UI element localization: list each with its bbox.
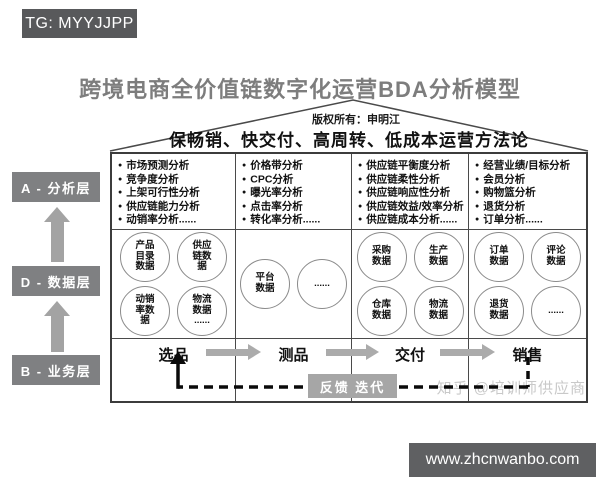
business-step-label: 交付 (395, 344, 425, 401)
layer-label-analysis: A - 分析层 (12, 172, 100, 202)
analysis-item: 供应链响应性分析 (356, 186, 466, 200)
business-step-label: 测品 (278, 344, 308, 401)
analysis-item: 供应链柔性分析 (356, 173, 466, 187)
footer-url: www.zhcnwanbo.com (409, 443, 596, 477)
flow-arrow-icon (440, 344, 495, 360)
analysis-item: 经营业绩/目标分析 (473, 159, 584, 173)
analysis-item: 购物篮分析 (473, 186, 584, 200)
data-cell-sales: 订单 数据 评论 数据 退货 数据 ...... (469, 230, 586, 339)
layer-label-business: B - 业务层 (12, 355, 100, 385)
data-circle: ...... (297, 259, 347, 309)
analysis-item: 曝光率分析 (240, 186, 349, 200)
analysis-cell-delivery: 供应链平衡度分析 供应链柔性分析 供应链响应性分析 供应链效益/效率分析 供应链… (352, 154, 469, 230)
layer-label-data: D - 数据层 (12, 266, 100, 296)
bda-model-table: 市场预测分析 竞争度分析 上架可行性分析 供应链能力分析 动销率分析......… (110, 152, 588, 403)
analysis-item: 供应链能力分析 (116, 200, 233, 214)
slogan-text: 保畅销、快交付、高周转、低成本运营方法论 (110, 126, 588, 151)
analysis-item: 供应链成本分析...... (356, 213, 466, 227)
up-arrow-icon (44, 207, 70, 262)
feedback-label: 反馈 迭代 (308, 374, 397, 398)
data-circle: 物流 数据 (414, 286, 464, 336)
data-circle: 评论 数据 (531, 232, 581, 282)
up-arrow-icon (44, 301, 70, 352)
analysis-item: 动销率分析...... (116, 213, 233, 227)
diagram-canvas: TG: MYYJJPP 跨境电商全价值链数字化运营BDA分析模型 版权所有：申明… (0, 0, 600, 480)
data-cell-selection: 产品 目录 数据 供应 链数 据 动销 率数 据 物流 数据 ...... (112, 230, 236, 339)
data-circle: 订单 数据 (474, 232, 524, 282)
business-step-label: 选品 (158, 344, 188, 401)
analysis-item: 供应链平衡度分析 (356, 159, 466, 173)
analysis-item: 竞争度分析 (116, 173, 233, 187)
data-circle: 供应 链数 据 (177, 232, 227, 282)
flow-arrow-icon (206, 344, 261, 360)
analysis-item: 价格带分析 (240, 159, 349, 173)
copyright-text: 版权所有：申明江 (256, 111, 456, 127)
analysis-item: 订单分析...... (473, 213, 584, 227)
data-circle: 采购 数据 (357, 232, 407, 282)
data-circle: 仓库 数据 (357, 286, 407, 336)
data-cell-delivery: 采购 数据 生产 数据 仓库 数据 物流 数据 (352, 230, 469, 339)
flow-arrow-icon (326, 344, 379, 360)
data-circle: 物流 数据 ...... (177, 286, 227, 336)
analysis-item: 点击率分析 (240, 200, 349, 214)
data-circle: ...... (531, 286, 581, 336)
analysis-item: 供应链效益/效率分析 (356, 200, 466, 214)
data-circle: 平台 数据 (240, 259, 290, 309)
analysis-item: 退货分析 (473, 200, 584, 214)
analysis-item: 会员分析 (473, 173, 584, 187)
analysis-cell-sales: 经营业绩/目标分析 会员分析 购物篮分析 退货分析 订单分析...... (469, 154, 586, 230)
analysis-item: 上架可行性分析 (116, 186, 233, 200)
analysis-item: 转化率分析...... (240, 213, 349, 227)
analysis-item: CPC分析 (240, 173, 349, 187)
data-circle: 生产 数据 (414, 232, 464, 282)
analysis-cell-selection: 市场预测分析 竞争度分析 上架可行性分析 供应链能力分析 动销率分析...... (112, 154, 236, 230)
data-cell-testing: 平台 数据 ...... (236, 230, 352, 339)
data-circle: 产品 目录 数据 (120, 232, 170, 282)
data-circle: 退货 数据 (474, 286, 524, 336)
analysis-item: 市场预测分析 (116, 159, 233, 173)
data-circle: 动销 率数 据 (120, 286, 170, 336)
analysis-cell-testing: 价格带分析 CPC分析 曝光率分析 点击率分析 转化率分析...... (236, 154, 352, 230)
page-title: 跨境电商全价值链数字化运营BDA分析模型 (0, 72, 600, 104)
contact-badge: TG: MYYJJPP (22, 9, 137, 38)
watermark-text: 知乎 @培训师供应商 (437, 377, 586, 398)
